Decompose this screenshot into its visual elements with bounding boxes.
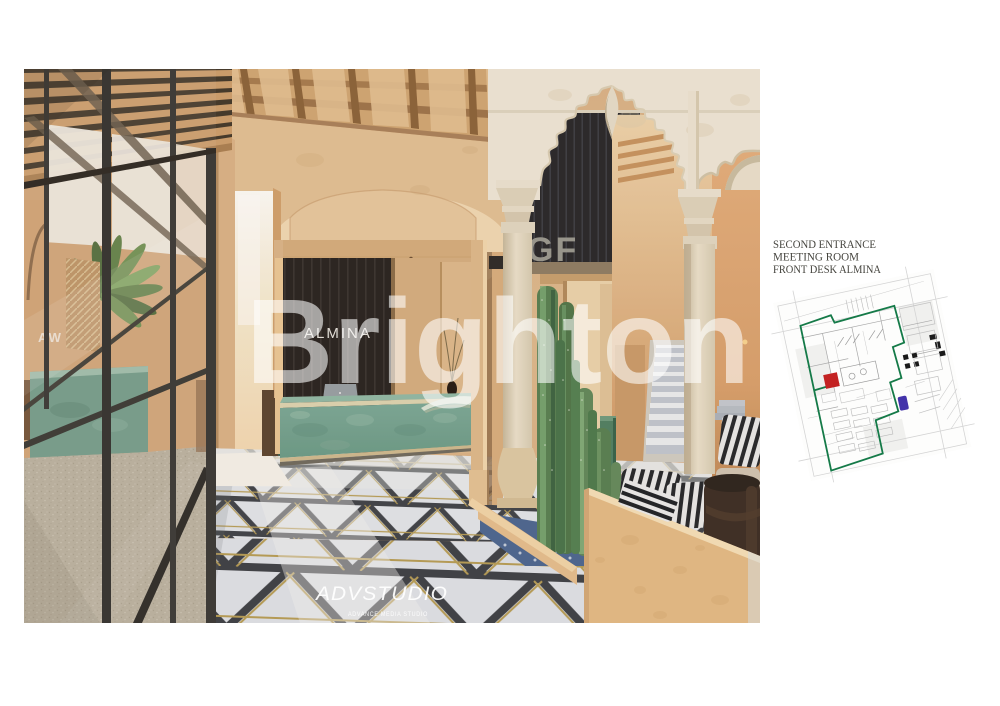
svg-text:Brighton: Brighton (246, 273, 750, 409)
svg-text:ADVSTUDIO: ADVSTUDIO (315, 584, 448, 605)
svg-text:SECOND ENTRANCE: SECOND ENTRANCE (773, 239, 876, 251)
svg-text:FRONT DESK ALMINA: FRONT DESK ALMINA (773, 264, 882, 276)
svg-text:MEETING ROOM: MEETING ROOM (773, 252, 859, 264)
svg-text:ADVANCE MEDIA STUDIO: ADVANCE MEDIA STUDIO (348, 611, 428, 618)
